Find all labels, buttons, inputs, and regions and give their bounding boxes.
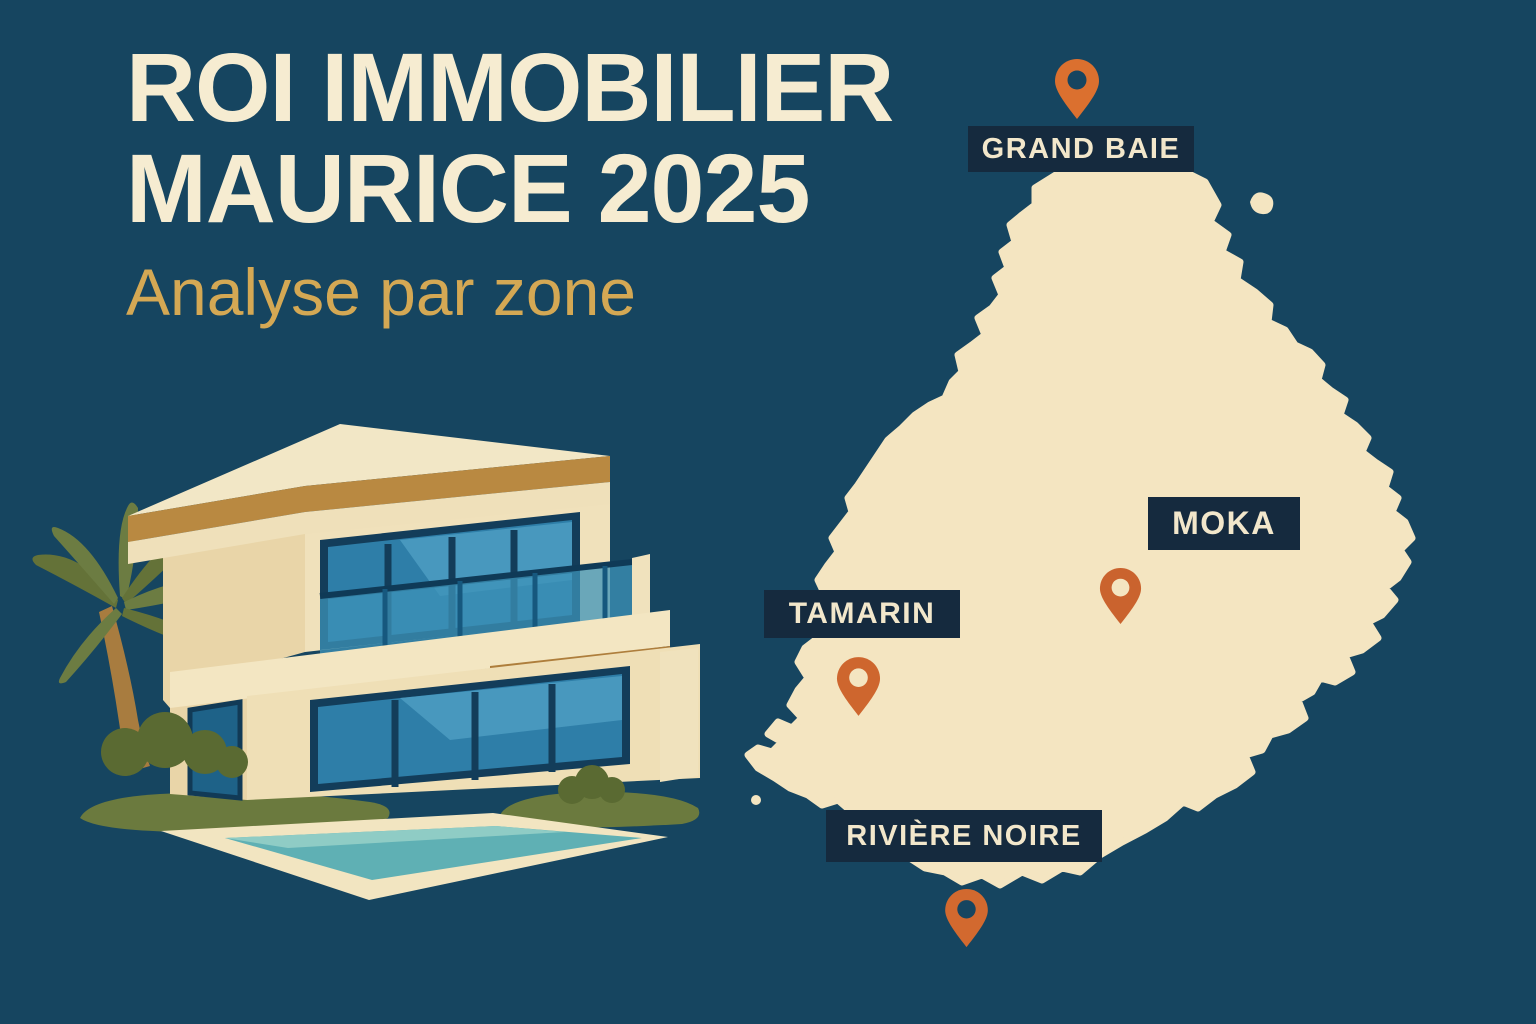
moka-label-text: MOKA: [1172, 505, 1276, 542]
villa-illustration: [20, 400, 720, 900]
tamarin-pin-hole: [849, 668, 868, 687]
tamarin-label-text: TAMARIN: [789, 597, 936, 631]
tamarin-label: TAMARIN: [764, 590, 960, 638]
mauritius-island-shape: [748, 163, 1412, 885]
grand-baie-pin-icon: [1054, 57, 1100, 121]
moka-label: MOKA: [1148, 497, 1300, 550]
riviere-noire-label-text: RIVIÈRE NOIRE: [846, 820, 1081, 853]
page-title-line1: ROI IMMOBILIER: [126, 38, 893, 139]
grand-baie-label-text: GRAND BAIE: [982, 133, 1181, 166]
tamarin-pin-icon: [836, 655, 881, 718]
villa-right-column: [660, 648, 698, 782]
infographic-canvas: ROI IMMOBILIER MAURICE 2025 Analyse par …: [0, 0, 1536, 1024]
riviere-noire-label: RIVIÈRE NOIRE: [826, 810, 1102, 862]
moka-pin-icon: [1099, 566, 1142, 626]
northeast-islet-shape: [1250, 192, 1273, 214]
west-islet-shape: [751, 795, 761, 805]
grand-baie-pin-hole: [1068, 71, 1087, 90]
riviere-noire-pin-icon: [944, 887, 989, 949]
grand-baie-label: GRAND BAIE: [968, 126, 1194, 172]
riviere-noire-pin-hole: [957, 900, 975, 918]
moka-pin-hole: [1112, 579, 1130, 597]
